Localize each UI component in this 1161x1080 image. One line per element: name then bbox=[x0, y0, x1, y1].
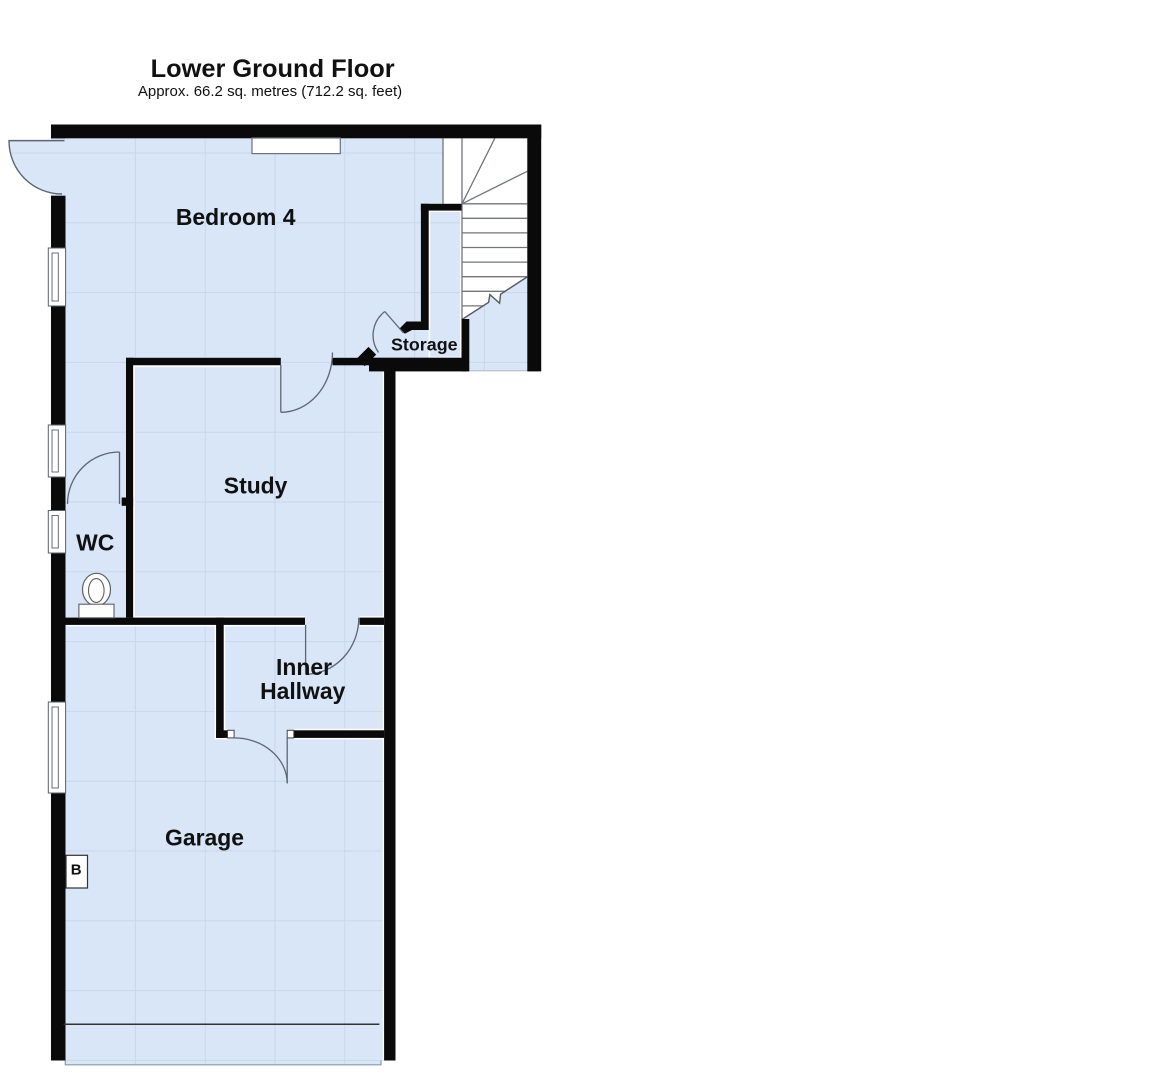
svg-text:Study: Study bbox=[224, 472, 288, 498]
svg-text:Garage: Garage bbox=[165, 824, 244, 850]
svg-text:Approx. 66.2 sq. metres (712.2: Approx. 66.2 sq. metres (712.2 sq. feet) bbox=[138, 83, 402, 100]
svg-text:B: B bbox=[71, 862, 82, 879]
svg-text:Storage: Storage bbox=[391, 335, 458, 355]
svg-text:WC: WC bbox=[76, 529, 114, 555]
svg-text:Lower Ground Floor: Lower Ground Floor bbox=[151, 55, 395, 83]
svg-text:Hallway: Hallway bbox=[260, 678, 346, 704]
svg-text:Bedroom 4: Bedroom 4 bbox=[176, 204, 296, 230]
svg-text:Inner: Inner bbox=[276, 654, 332, 680]
